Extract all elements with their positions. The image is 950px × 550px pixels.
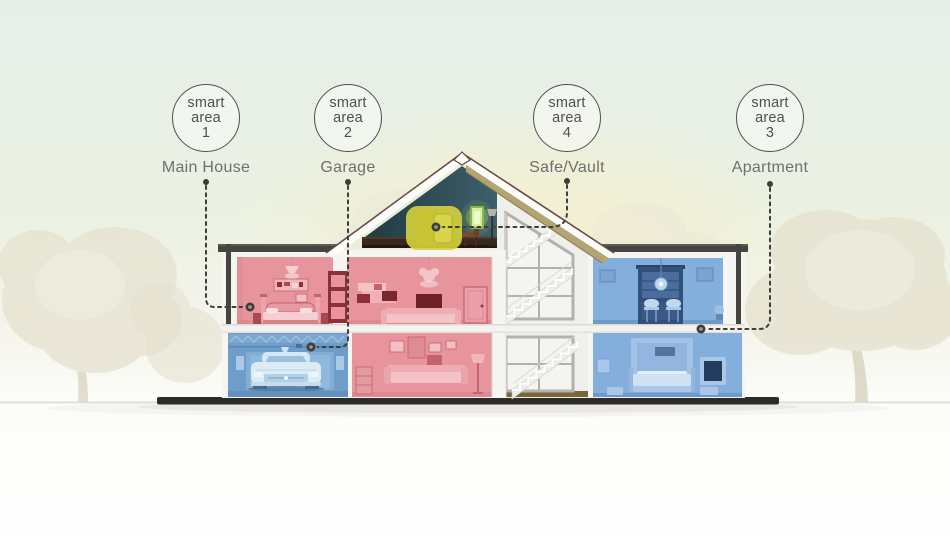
main-bedroom [237, 257, 348, 325]
badge-number: 1 [202, 126, 210, 141]
foundation-bar [157, 397, 779, 405]
illustration-canvas [0, 0, 950, 550]
badge-word: smart [548, 96, 585, 111]
badge-word: area [552, 111, 582, 126]
family-sofa [386, 372, 468, 383]
left-wall-edge [226, 244, 231, 324]
living-room [347, 257, 492, 325]
door [464, 287, 487, 323]
smart-area-2-callout: smart area 2 Garage [283, 84, 413, 177]
family-room [352, 333, 492, 397]
badge-word: area [333, 111, 363, 126]
badge-word: smart [751, 96, 788, 111]
badge-word: smart [329, 96, 366, 111]
smart-area-1-badge: smart area 1 [172, 84, 240, 152]
smart-area-1-callout: smart area 1 Main House [141, 84, 271, 177]
floor-lamp [471, 354, 485, 363]
bed [263, 312, 318, 320]
garage [228, 333, 348, 397]
smart-area-4-label: Safe/Vault [502, 159, 632, 177]
smart-area-1-label: Main House [141, 159, 271, 177]
badge-number: 2 [344, 126, 352, 141]
right-wall-edge [736, 244, 741, 324]
left-bushes [130, 282, 225, 383]
sofa [383, 314, 459, 323]
badge-word: area [755, 111, 785, 126]
ground [0, 397, 950, 417]
smart-area-2-label: Garage [283, 159, 413, 177]
right-tree [745, 210, 950, 402]
apartment-dining-room [593, 258, 724, 324]
badge-number: 4 [563, 126, 571, 141]
apartment-bedroom [593, 333, 742, 397]
smart-area-3-label: Apartment [705, 159, 835, 177]
smart-area-4-badge: smart area 4 [533, 84, 601, 152]
apartment-bed [633, 374, 691, 386]
floor-slab [222, 324, 745, 333]
dresser [356, 367, 372, 394]
smart-home-cutaway-illustration: smart area 1 Main House smart area 2 Gar… [0, 0, 950, 550]
smart-area-2-badge: smart area 2 [314, 84, 382, 152]
badge-number: 3 [766, 126, 774, 141]
smart-area-3-badge: smart area 3 [736, 84, 804, 152]
badge-word: area [191, 111, 221, 126]
smart-area-4-callout: smart area 4 Safe/Vault [502, 84, 632, 177]
badge-word: smart [187, 96, 224, 111]
smart-area-3-callout: smart area 3 Apartment [705, 84, 835, 177]
tv [416, 294, 442, 308]
